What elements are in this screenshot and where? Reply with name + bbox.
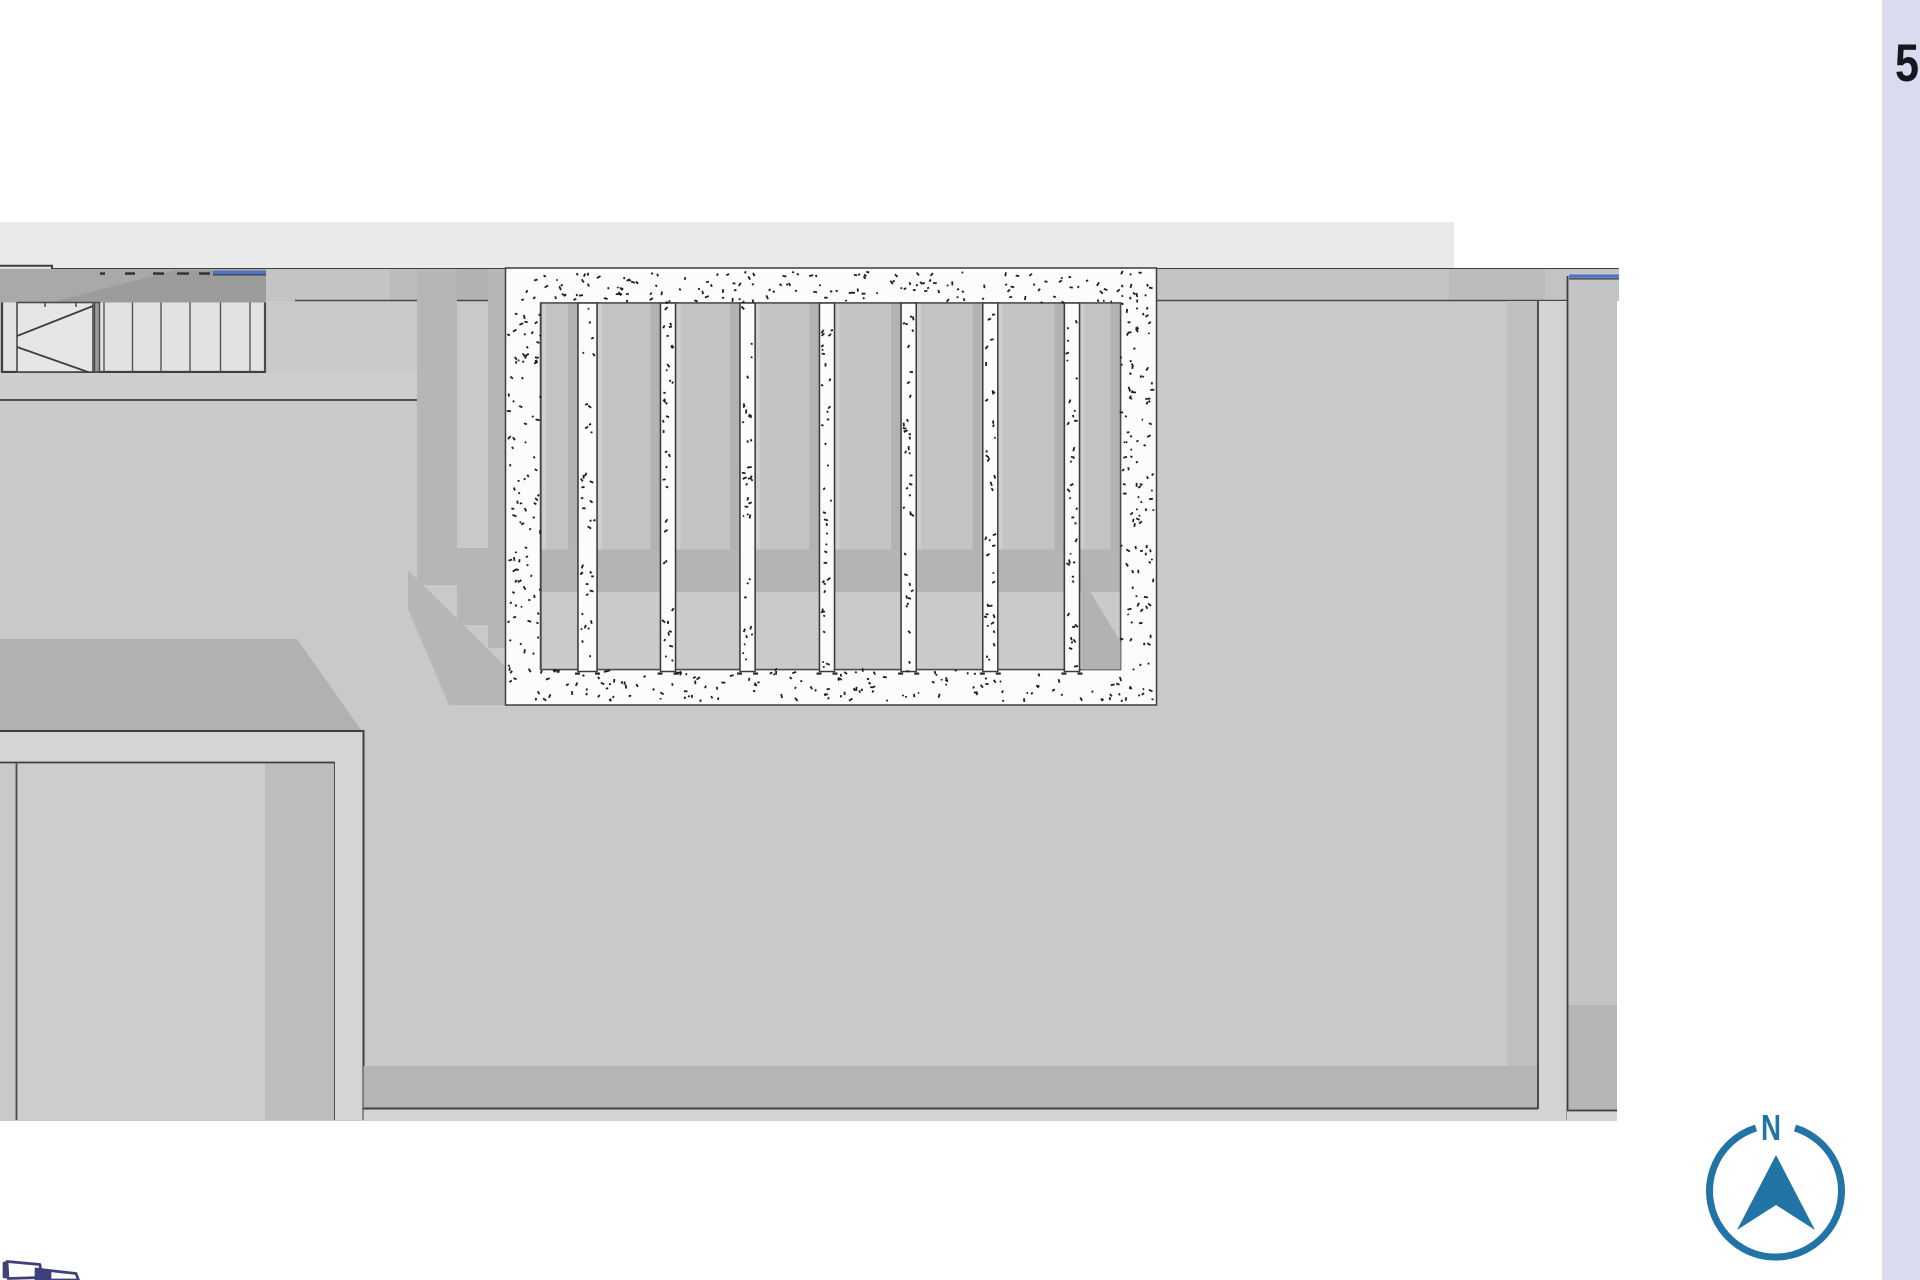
svg-text:5: 5: [1895, 34, 1919, 93]
svg-text:N: N: [1761, 1107, 1781, 1148]
